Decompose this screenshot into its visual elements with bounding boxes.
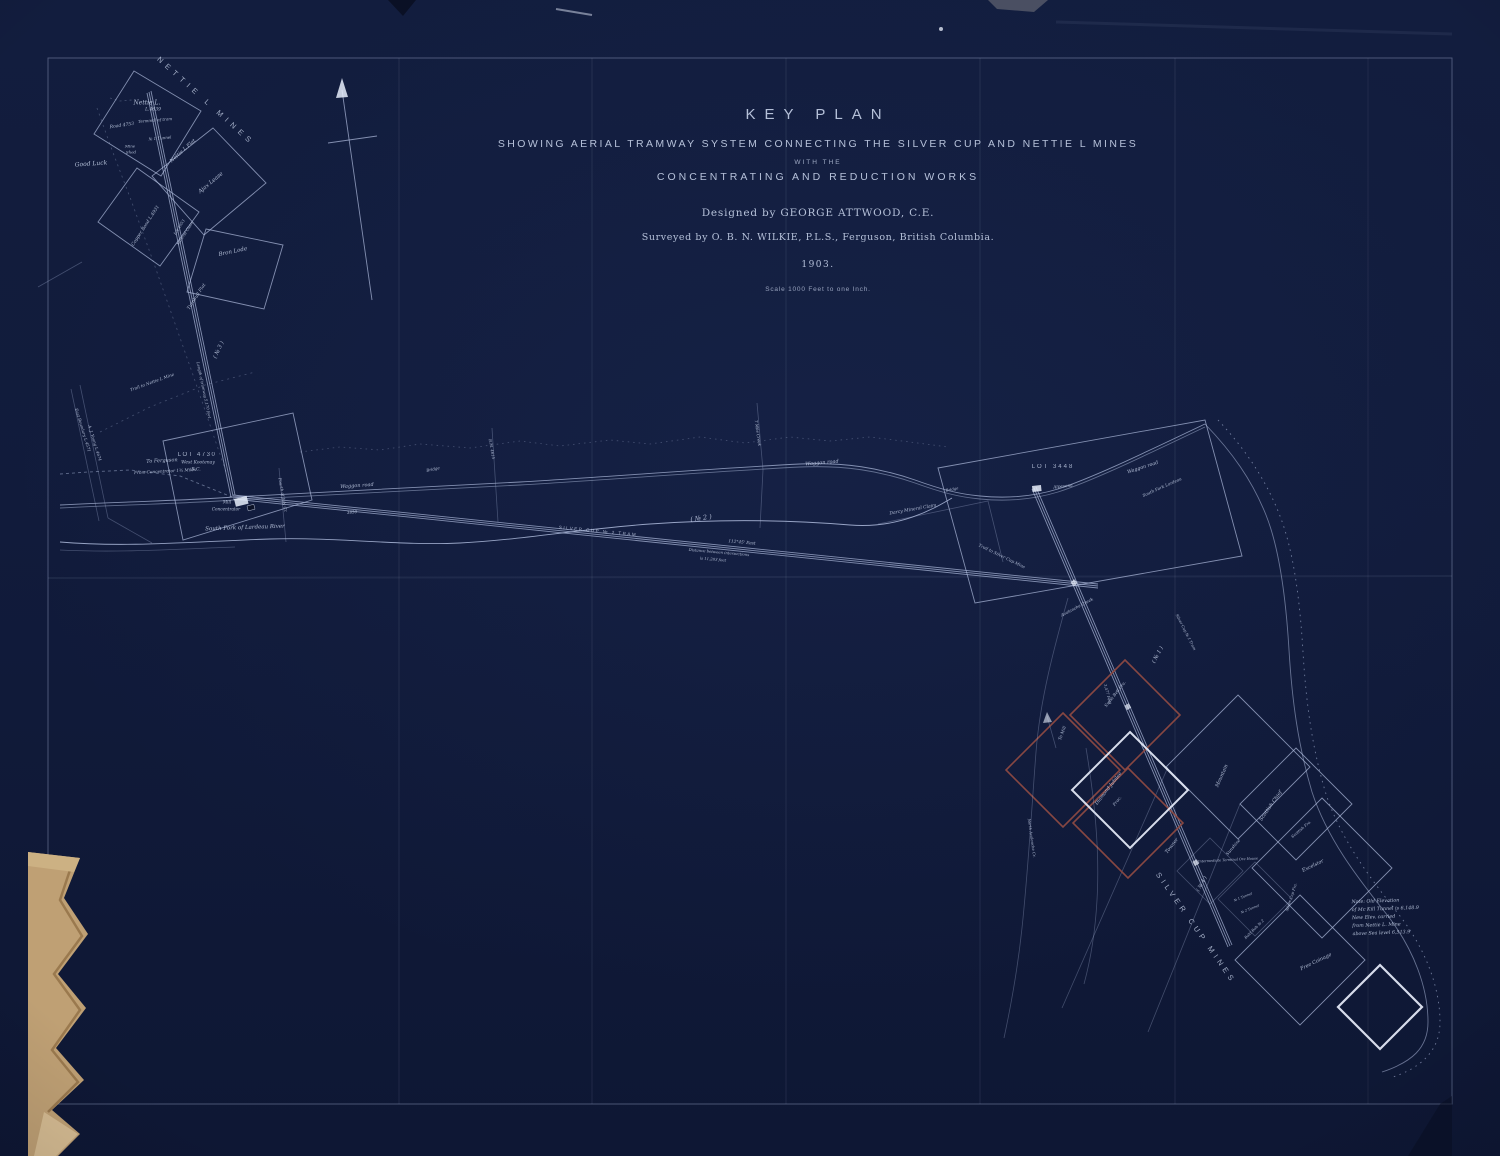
creeks-southeast — [1004, 598, 1098, 1038]
nettie-l-claim-boundaries — [38, 71, 283, 309]
blueprint-sheet: KEY PLAN SHOWING AERIAL TRAMWAY SYSTEM C… — [0, 0, 1500, 1156]
map-subtitle-2: WITH THE — [462, 159, 1174, 166]
designed-by: Designed by GEORGE ATTWOOD, C.E. — [462, 207, 1174, 219]
elevation-note: Note: Old Elevationof Mc Kill Tunnel is … — [1351, 897, 1420, 939]
dotted-trail — [300, 437, 948, 452]
torn-paper-edge — [28, 852, 88, 1156]
river-right — [1205, 420, 1440, 1078]
north-arrow-icon — [328, 78, 377, 300]
surveyed-by: Surveyed by O. B. N. WILKIE, P.L.S., Fer… — [462, 232, 1174, 243]
map-subtitle-3: CONCENTRATING AND REDUCTION WORKS — [462, 171, 1174, 183]
tram-line-no1 — [1032, 487, 1232, 947]
lot-4730-boundary — [71, 385, 312, 543]
map-scale: Scale 1000 Feet to one Inch. — [462, 286, 1174, 293]
map-title: KEY PLAN — [462, 106, 1174, 123]
trail-dashed-lines — [60, 108, 255, 497]
title-block: KEY PLAN SHOWING AERIAL TRAMWAY SYSTEM C… — [462, 106, 1174, 293]
map-subtitle-1: SHOWING AERIAL TRAMWAY SYSTEM CONNECTING… — [462, 138, 1174, 150]
tram-line-no3 — [147, 91, 235, 497]
waggon-road — [60, 424, 1205, 508]
river-left — [60, 498, 952, 551]
creeks-mid — [279, 403, 1056, 748]
map-year: 1903. — [462, 260, 1174, 270]
